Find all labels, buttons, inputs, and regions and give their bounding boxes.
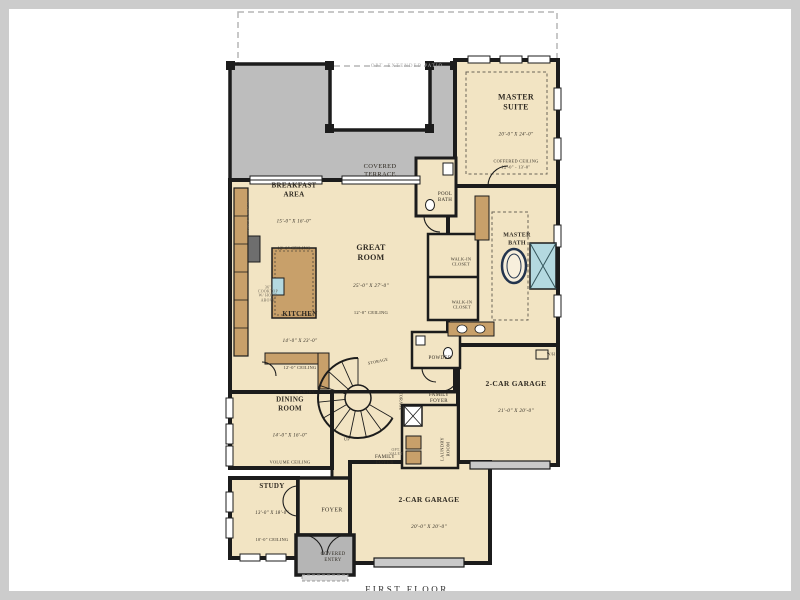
opt-patio-label: OPT. EXTENDED PATIO: [371, 64, 443, 70]
garage-bottom-door: [374, 558, 464, 567]
vanity-icon: [448, 322, 494, 336]
master-bath-label: MASTER BATH: [503, 233, 530, 248]
garage-right-door: [470, 461, 550, 469]
great-room-label: GREAT ROOM 25'-0" X 27'-0" 12'-0" CEILIN…: [353, 223, 389, 335]
washer-icon: [406, 436, 421, 449]
kitchen-ceiling: 12'-0" CEILING: [282, 365, 317, 370]
foyer-label: FOYER: [321, 507, 342, 515]
dryer-icon: [406, 451, 421, 464]
floor-plan-canvas: OPT. EXTENDED PATIO COVERED TERRACE MAST…: [0, 0, 800, 600]
pool-bath-label: POOL BATH: [438, 192, 452, 205]
master-suite-dims: 20'-0" X 24'-0": [493, 133, 538, 139]
laundry-label: LAUNDRY ROOM: [439, 437, 450, 461]
water-heater-label: W/H: [547, 353, 555, 358]
great-room-name: GREAT ROOM: [353, 243, 389, 263]
great-room-ceiling: 12'-0" CEILING: [353, 309, 389, 315]
master-suite-name: MASTER SUITE: [493, 93, 538, 113]
covered-entry-label: COVERED ENTRY: [321, 552, 346, 564]
kitchen-dims: 14'-0" X 23'-0": [282, 339, 317, 345]
breakfast-area-ceiling: 12'-0" CEILING: [272, 245, 317, 250]
up-label: UP: [344, 436, 350, 441]
family-foyer-1-label: FAMILY FOYER: [429, 393, 449, 406]
garage-right-name: 2-CAR GARAGE: [486, 379, 547, 388]
storage-2-label: STORAGE: [399, 390, 404, 410]
cooktop-note-label: 36" COOKTOP W/ HOOD ABOVE: [258, 286, 278, 303]
entry-step: [302, 575, 348, 581]
covered-terrace-label: COVERED TERRACE: [364, 163, 397, 179]
linen-cabinet: [475, 196, 489, 240]
garage-right-label: 2-CAR GARAGE 21'-0" X 20'-0": [486, 359, 547, 435]
breakfast-area-dims: 15'-0" X 16'-0": [272, 219, 317, 225]
study-name: STUDY: [255, 482, 289, 491]
master-suite-label: MASTER SUITE 20'-0" X 24'-0" COFFERED CE…: [493, 73, 538, 190]
breakfast-area-name: BREAKFAST AREA: [272, 181, 317, 199]
plan-title: FIRST FLOOR: [365, 584, 449, 595]
great-room-dims: 25'-0" X 27'-0": [353, 283, 389, 290]
master-suite-ceiling: COFFERED CEILING 12'-0" - 13'-0": [493, 159, 538, 170]
dining-room-dims: 14'-0" X 16'-0": [270, 433, 311, 439]
garage-bottom-label: 2-CAR GARAGE 20'-0" X 20'-0": [399, 475, 460, 551]
kitchen-name: KITCHEN: [282, 310, 317, 319]
dining-room-name: DINING ROOM: [270, 395, 311, 413]
study-label: STUDY 13'-0" X 18'-0" 10'-0" CEILING: [255, 462, 289, 562]
breakfast-area-label: BREAKFAST AREA 15'-0" X 16'-0" 12'-0" CE…: [272, 161, 317, 270]
garage-bottom-name: 2-CAR GARAGE: [399, 495, 460, 504]
family-foyer-2-label: FAMILY FOYER: [375, 455, 395, 468]
upper-cabinets-label: UPR. CABINETS: [246, 201, 250, 231]
study-ceiling: 10'-0" CEILING: [255, 537, 289, 542]
garage-right-dims: 21'-0" X 20'-0": [486, 408, 547, 415]
powder-label: POWDER: [429, 356, 452, 362]
wall-oven-icon: [248, 236, 260, 262]
walk-in-closet-2-label: WALK-IN CLOSET: [452, 300, 472, 311]
walk-in-closet-1-label: WALK-IN CLOSET: [451, 257, 471, 268]
study-dims: 13'-0" X 18'-0": [255, 511, 289, 517]
garage-bottom-dims: 20'-0" X 20'-0": [399, 524, 460, 531]
